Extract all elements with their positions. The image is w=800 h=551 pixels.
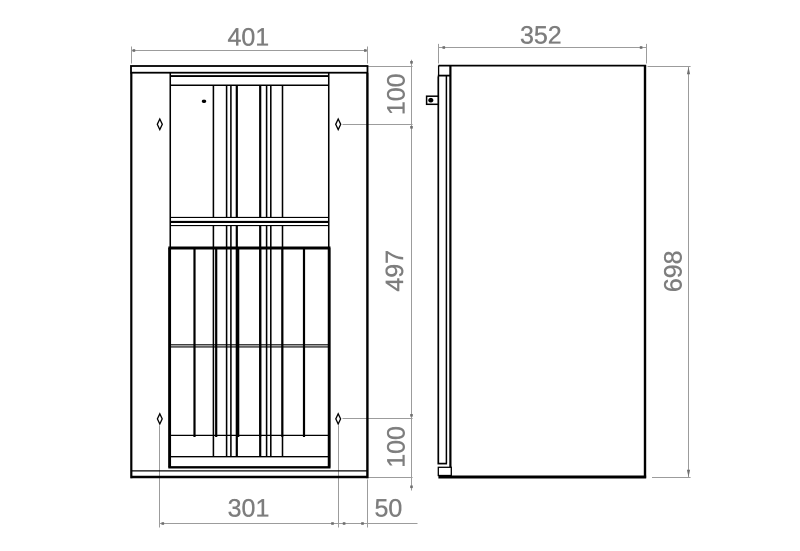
svg-text:100: 100	[383, 426, 411, 468]
svg-text:497: 497	[381, 250, 409, 292]
svg-text:100: 100	[383, 73, 411, 115]
svg-text:698: 698	[659, 250, 687, 292]
svg-text:50: 50	[374, 494, 402, 522]
svg-text:301: 301	[228, 494, 270, 522]
svg-text:352: 352	[520, 21, 562, 49]
svg-text:401: 401	[227, 23, 269, 51]
